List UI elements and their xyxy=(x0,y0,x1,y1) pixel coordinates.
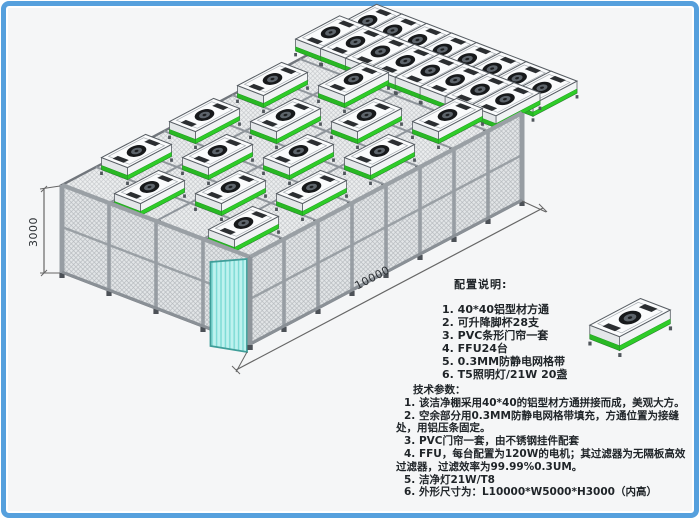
technical-drawing-page: 3000 10000 配置说明: 1. 40*40铝型材方通 2. 可升降脚杯2… xyxy=(0,0,700,519)
dimension-height-label: 3000 xyxy=(27,217,40,247)
config-note-item: 5. 0.3MM防静电网格带 xyxy=(442,355,652,368)
tech-params-block: 技术参数： 1. 该洁净棚采用40*40的铝型材方通拼接而成，美观大方。 2. … xyxy=(396,384,692,499)
config-notes-block: 配置说明: 1. 40*40铝型材方通 2. 可升降脚杯28支 3. PVC条形… xyxy=(442,276,652,381)
config-note-item: 4. FFU24台 xyxy=(442,342,652,355)
tech-param-item: 3. PVC门帘一套，由不锈钢挂件配套 xyxy=(396,435,692,448)
config-note-item: 1. 40*40铝型材方通 xyxy=(442,303,652,316)
tech-param-item: 6. 外形尺寸为：L10000*W5000*H3000（内高） xyxy=(396,486,692,499)
pvc-strip-door xyxy=(211,257,253,352)
tech-param-item: 2. 空余部分用0.3MM防静电网格带填充，方通位置为接缝处，用铝压条固定。 xyxy=(396,410,692,436)
config-note-item: 6. T5照明灯/21W 20盏 xyxy=(442,368,652,381)
config-note-item: 2. 可升降脚杯28支 xyxy=(442,316,652,329)
tech-param-item: 5. 洁净灯21W/T8 xyxy=(396,474,692,487)
tech-param-item: 1. 该洁净棚采用40*40的铝型材方通拼接而成，美观大方。 xyxy=(396,397,692,410)
tech-param-item: 4. FFU，每台配置为120W的电机；其过滤器为无隔板高效过滤器，过滤效率为9… xyxy=(396,448,692,474)
tech-params-title: 技术参数： xyxy=(396,384,692,397)
config-notes-title: 配置说明: xyxy=(454,276,652,292)
config-note-item: 3. PVC条形门帘一套 xyxy=(442,329,652,342)
